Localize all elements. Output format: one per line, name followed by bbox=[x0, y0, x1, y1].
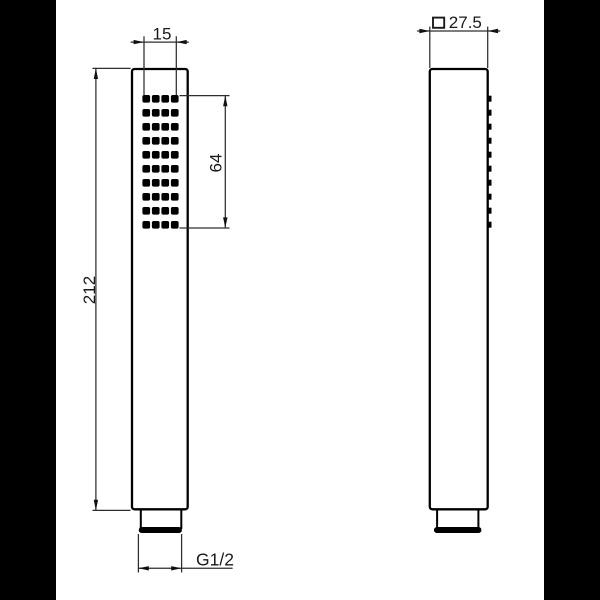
svg-text:27.5: 27.5 bbox=[449, 13, 482, 32]
svg-text:212: 212 bbox=[80, 276, 99, 304]
svg-text:15: 15 bbox=[153, 25, 172, 44]
svg-text:G1/2: G1/2 bbox=[196, 549, 234, 569]
svg-text:64: 64 bbox=[207, 154, 226, 173]
